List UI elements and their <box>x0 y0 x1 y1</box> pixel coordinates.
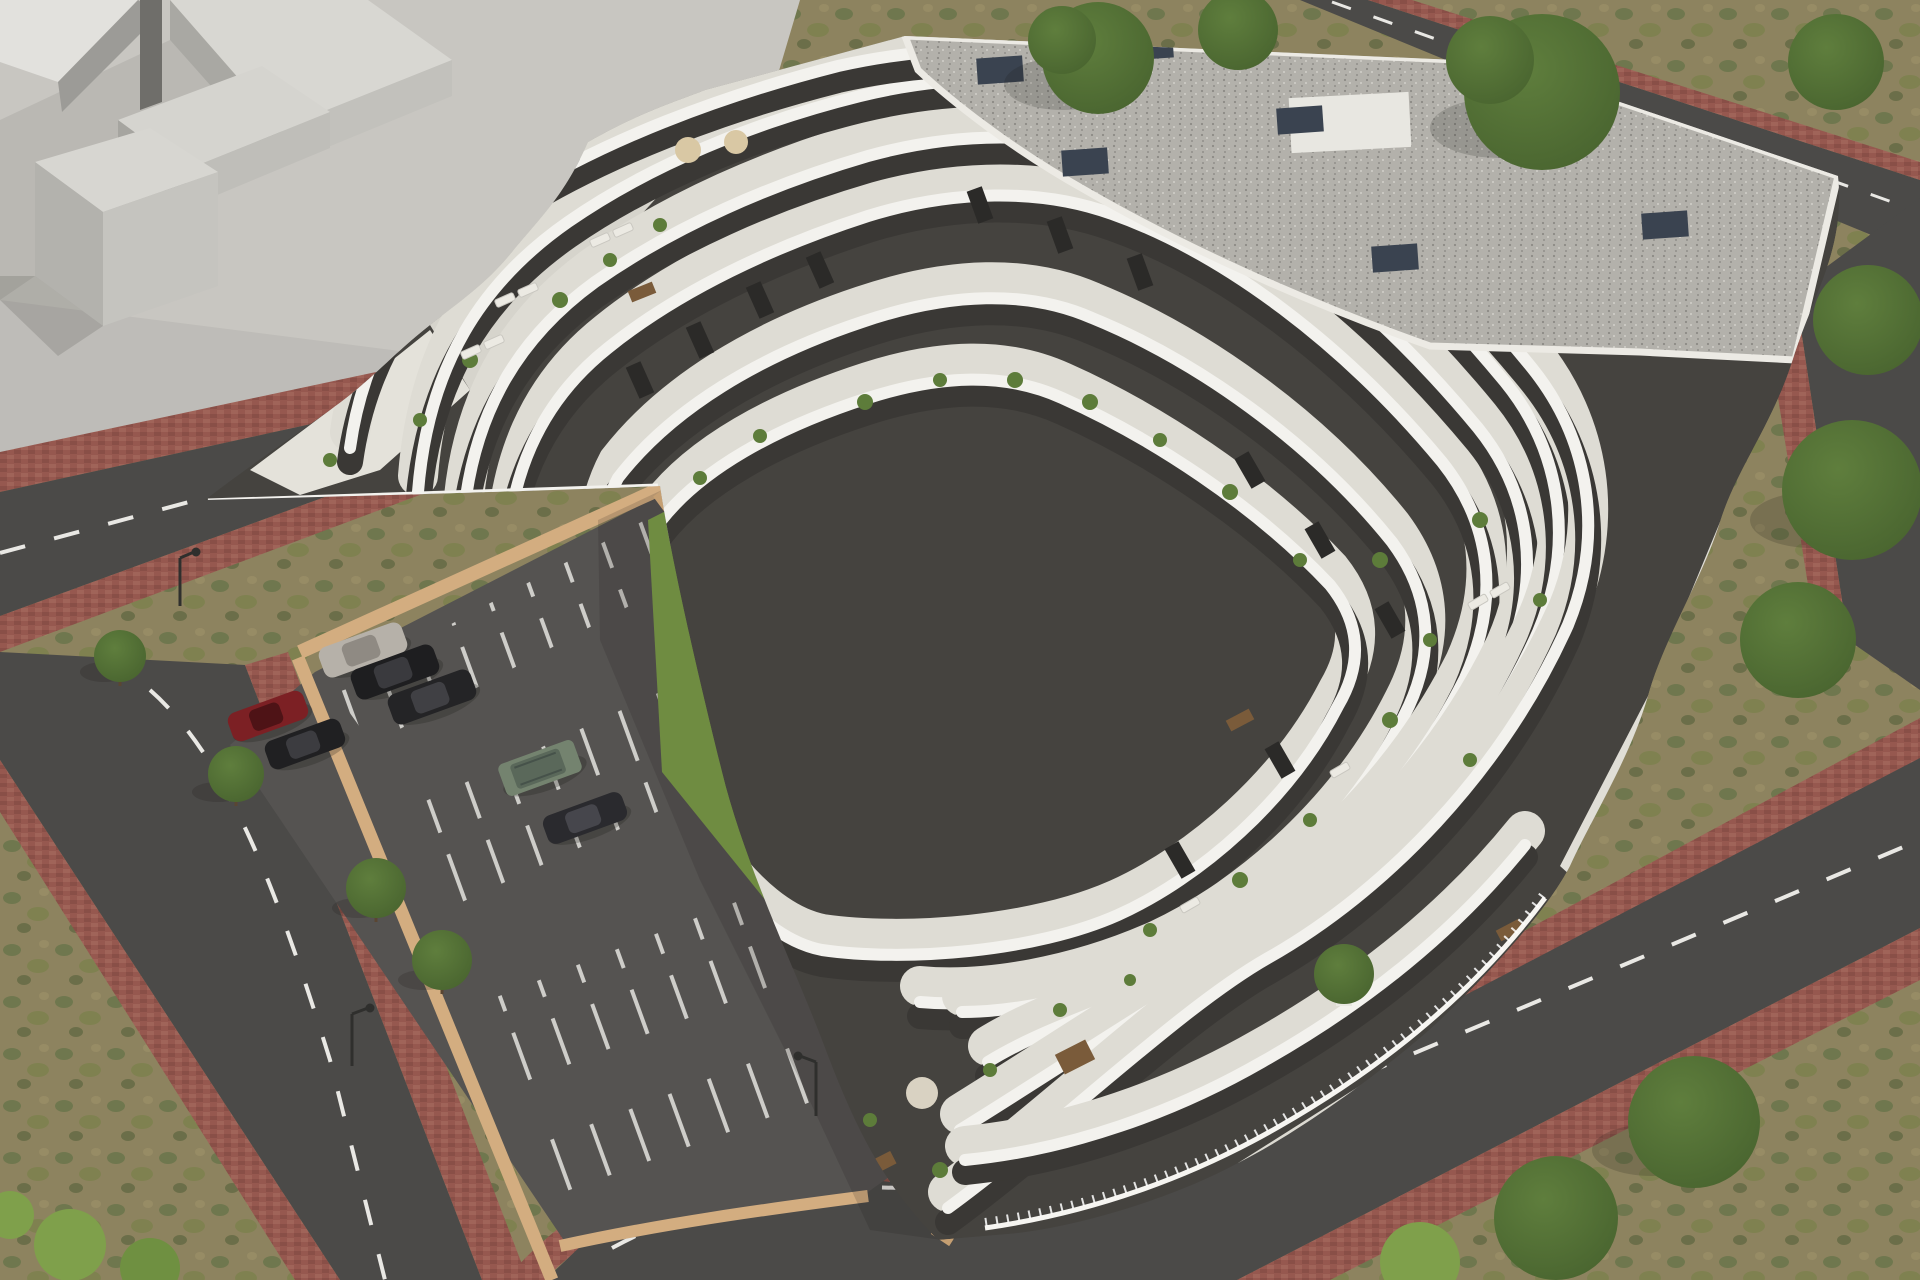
roof-parasol <box>724 130 748 154</box>
massing-dark-slab <box>140 0 162 110</box>
roof-parasol <box>675 137 701 163</box>
terrace-rug <box>906 1077 938 1109</box>
aerial-render <box>0 0 1920 1280</box>
render-canvas <box>0 0 1920 1280</box>
